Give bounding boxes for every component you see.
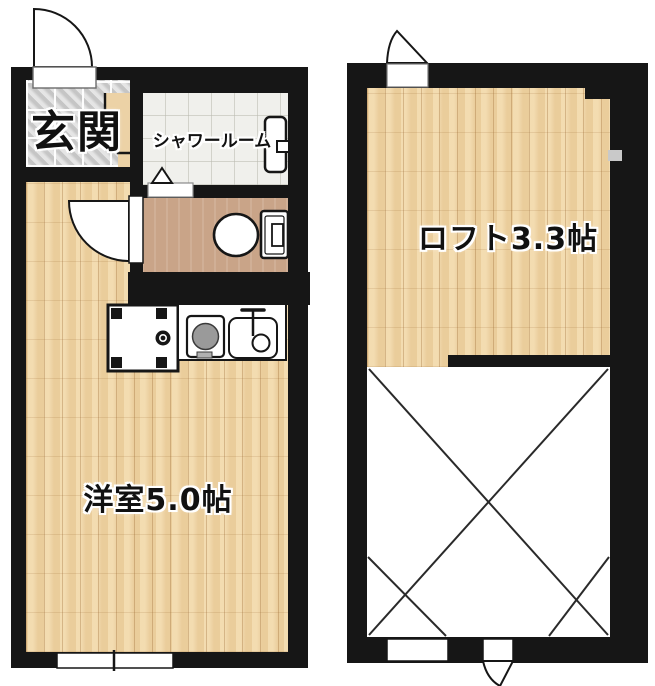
main-room-window-icon (57, 650, 173, 671)
loft-label: ロフト3.3帖 (418, 214, 598, 258)
kitchen-counter-icon (178, 304, 286, 360)
shower-room-label: シャワールーム (153, 127, 272, 152)
loft-bottom-door-icon (483, 639, 513, 686)
entrance-door-icon (33, 9, 96, 88)
western-room-label: 洋室5.0帖 (83, 475, 232, 519)
washing-machine-pan-icon (108, 305, 178, 371)
kitchen-sink-icon (229, 310, 277, 358)
toilet-door-icon (69, 196, 143, 263)
loft-casement-window-icon (387, 31, 428, 87)
toilet-icon (214, 211, 288, 258)
stove-icon (187, 316, 224, 358)
void-x-icon (368, 369, 609, 636)
floor-plan: 玄関 シャワールーム 洋室5.0帖 ロフト3.3帖 (0, 0, 655, 686)
loft-bottom-window-icon (387, 639, 448, 661)
entrance-label: 玄関 (31, 96, 123, 160)
shower-step-icon (148, 168, 193, 197)
